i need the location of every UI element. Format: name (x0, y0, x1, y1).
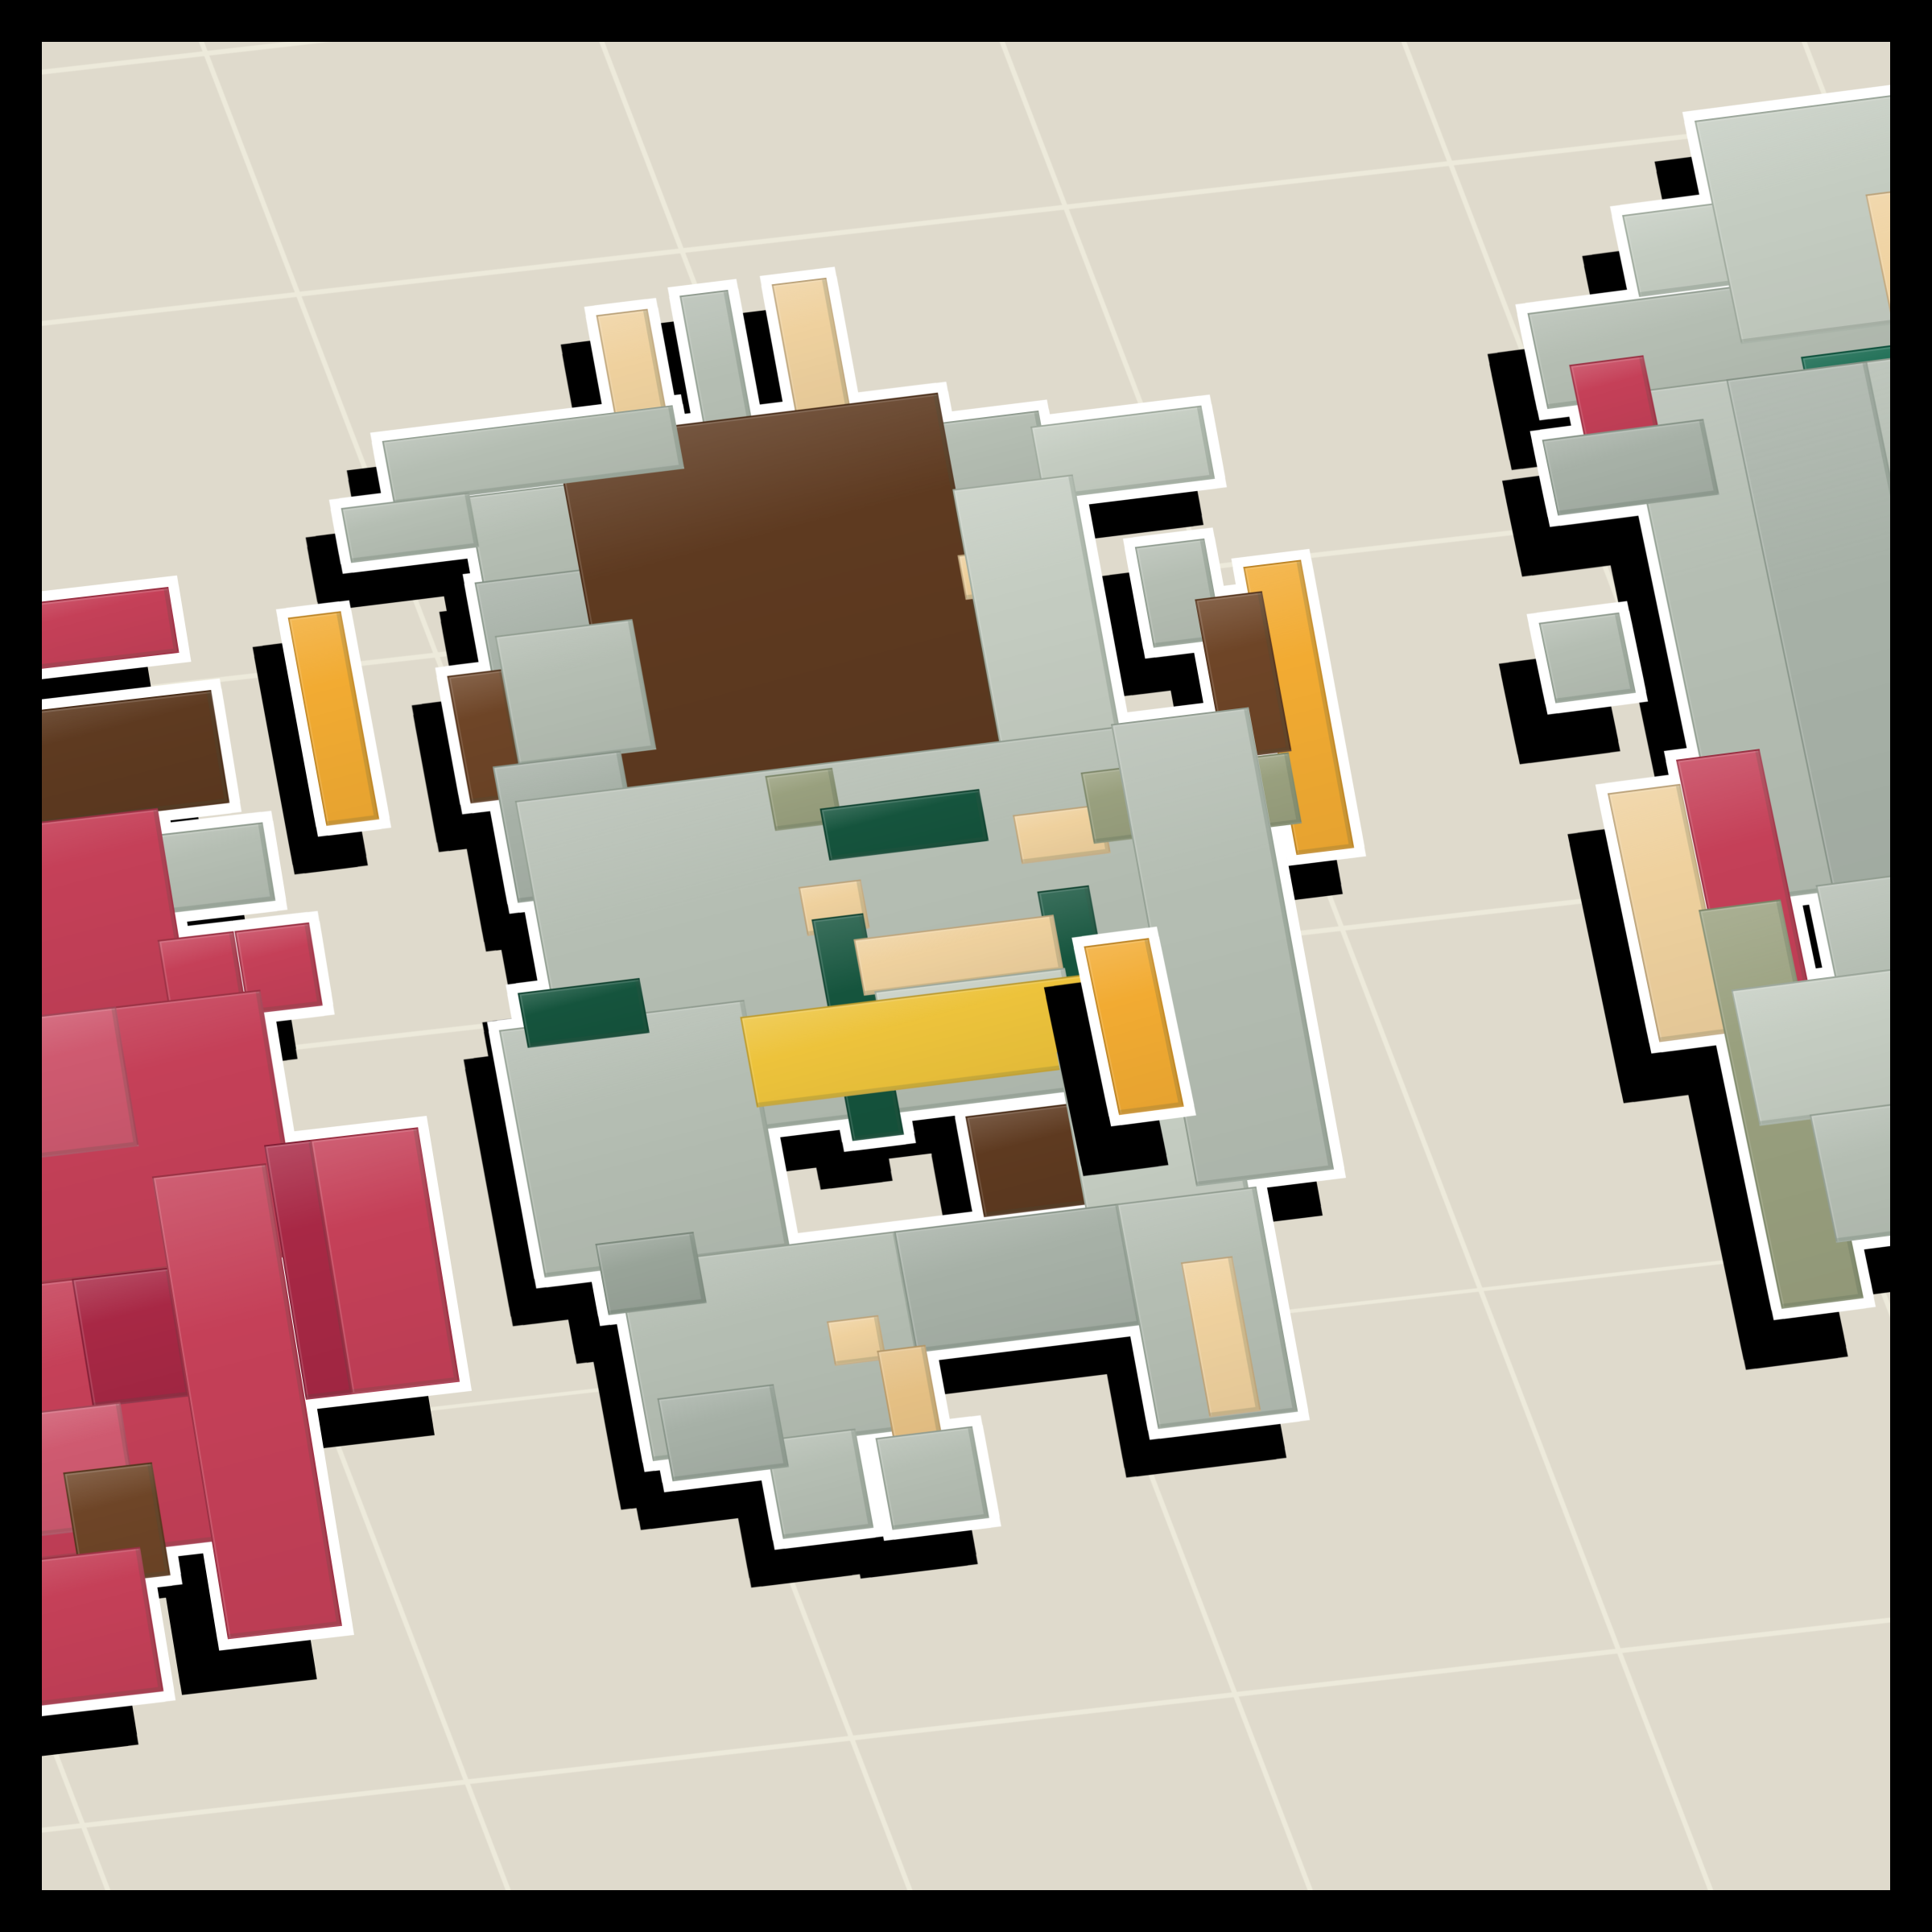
ship-block-grayDark (595, 1232, 707, 1315)
ship-block-grayCool (657, 1384, 789, 1481)
ship-block-gray (1538, 613, 1636, 704)
ship-block-gray (875, 1426, 989, 1530)
ship-block-grayLight (1731, 966, 1890, 1125)
art-canvas (42, 42, 1890, 1890)
ship-block-gray (495, 619, 657, 766)
artwork-frame (0, 0, 1932, 1932)
